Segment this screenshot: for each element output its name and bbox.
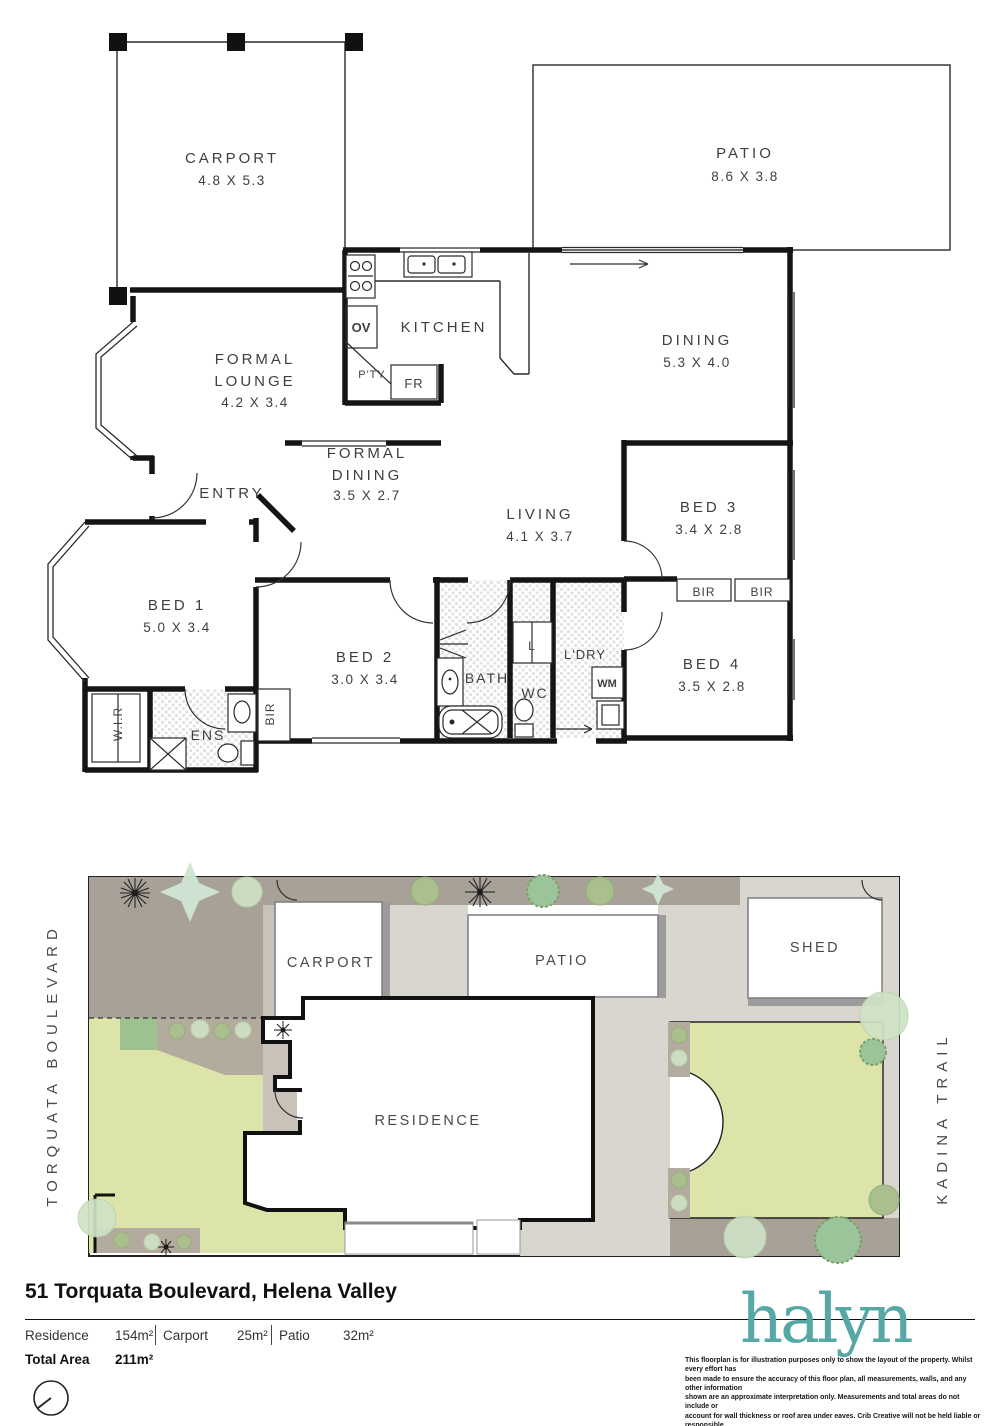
bed3-label: BED 3: [680, 499, 738, 516]
entry-label: ENTRY: [199, 485, 265, 502]
compass-icon: [30, 1376, 72, 1420]
disclaimer-line: shown are an approximate interpretation …: [685, 1393, 985, 1412]
bed4-dims: 3.5 X 2.8: [678, 679, 746, 694]
carport-label: CARPORT: [185, 150, 279, 167]
carport-structure: [109, 33, 363, 305]
formal-lounge-dims: 4.2 X 3.4: [221, 395, 289, 410]
dining-dims: 5.3 X 4.0: [663, 355, 731, 370]
address-title: 51 Torquata Boulevard, Helena Valley: [25, 1280, 397, 1304]
patio-area-value: 32m²: [343, 1328, 374, 1343]
bir-bed1-label: BIR: [263, 702, 277, 725]
site-shed-label: SHED: [790, 940, 840, 956]
floorplan-drawing: CARPORT 4.8 X 5.3 PATIO 8.6 X 3.8 KITCHE…: [0, 0, 1000, 845]
site-patio-label: PATIO: [535, 953, 589, 969]
ldry-label: L'DRY: [564, 647, 606, 662]
pantry-label: P'TY: [358, 369, 386, 381]
disclaimer-line: been made to ensure the accuracy of this…: [685, 1375, 985, 1394]
street-kadina-trail: KADINA TRAIL: [934, 1031, 951, 1204]
floorplan-page: CARPORT 4.8 X 5.3 PATIO 8.6 X 3.8 KITCHE…: [0, 0, 1000, 1426]
bath-label: BATH: [465, 670, 509, 686]
wir-label: W.I.R: [111, 707, 125, 741]
bed2-dims: 3.0 X 3.4: [331, 672, 399, 687]
carport-dims: 4.8 X 5.3: [198, 173, 266, 188]
dining-label: DINING: [662, 332, 733, 349]
laundry-fixtures: [592, 667, 624, 729]
formal-lounge-label-1: FORMAL: [215, 351, 296, 368]
formal-dining-label-2: DINING: [332, 467, 403, 484]
bed1-label: BED 1: [148, 597, 206, 614]
site-carport-label: CARPORT: [287, 955, 375, 971]
fridge-label: FR: [404, 376, 423, 391]
wm-label: WM: [597, 678, 617, 690]
bir-right-label: BIR: [750, 585, 773, 599]
formal-lounge-label-2: LOUNGE: [214, 373, 295, 390]
total-area-label: Total Area: [25, 1352, 90, 1367]
halyn-logo: halyn: [740, 1286, 911, 1353]
patio-area-label: Patio: [279, 1328, 310, 1343]
street-torquata-boulevard: TORQUATA BOULEVARD: [44, 923, 61, 1207]
bir-left-label: BIR: [692, 585, 715, 599]
bed4-label: BED 4: [683, 656, 741, 673]
total-area-value: 211m²: [115, 1352, 153, 1367]
area-separator: [271, 1325, 272, 1345]
patio-dims: 8.6 X 3.8: [711, 169, 779, 184]
kitchen-label: KITCHEN: [401, 319, 488, 336]
disclaimer-line: account for wall thickness or roof area …: [685, 1412, 985, 1426]
carport-area-label: Carport: [163, 1328, 208, 1343]
disclaimer-text: This floorplan is for illustration purpo…: [685, 1356, 985, 1426]
patio-label: PATIO: [716, 145, 774, 162]
area-separator: [155, 1325, 156, 1345]
residence-area-label: Residence: [25, 1328, 89, 1343]
siteplan-drawing: CARPORT PATIO SHED RESIDENCE TORQUATA BO…: [0, 845, 1000, 1275]
footer: 51 Torquata Boulevard, Helena Valley Res…: [0, 1272, 1000, 1426]
disclaimer-line: This floorplan is for illustration purpo…: [685, 1356, 985, 1375]
living-label: LIVING: [506, 506, 573, 523]
linen-label: L: [528, 639, 536, 653]
bed3-dims: 3.4 X 2.8: [675, 522, 743, 537]
wc-label: WC: [521, 685, 548, 701]
formal-dining-label-1: FORMAL: [327, 445, 408, 462]
bed1-dims: 5.0 X 3.4: [143, 620, 211, 635]
living-dims: 4.1 X 3.7: [506, 529, 574, 544]
oven-label: OV: [352, 320, 371, 335]
residence-area-value: 154m²: [115, 1328, 153, 1343]
formal-dining-dims: 3.5 X 2.7: [333, 488, 401, 503]
bed2-label: BED 2: [336, 649, 394, 666]
ens-label: ENS: [191, 727, 226, 743]
site-residence-label: RESIDENCE: [374, 1113, 481, 1129]
carport-area-value: 25m²: [237, 1328, 268, 1343]
